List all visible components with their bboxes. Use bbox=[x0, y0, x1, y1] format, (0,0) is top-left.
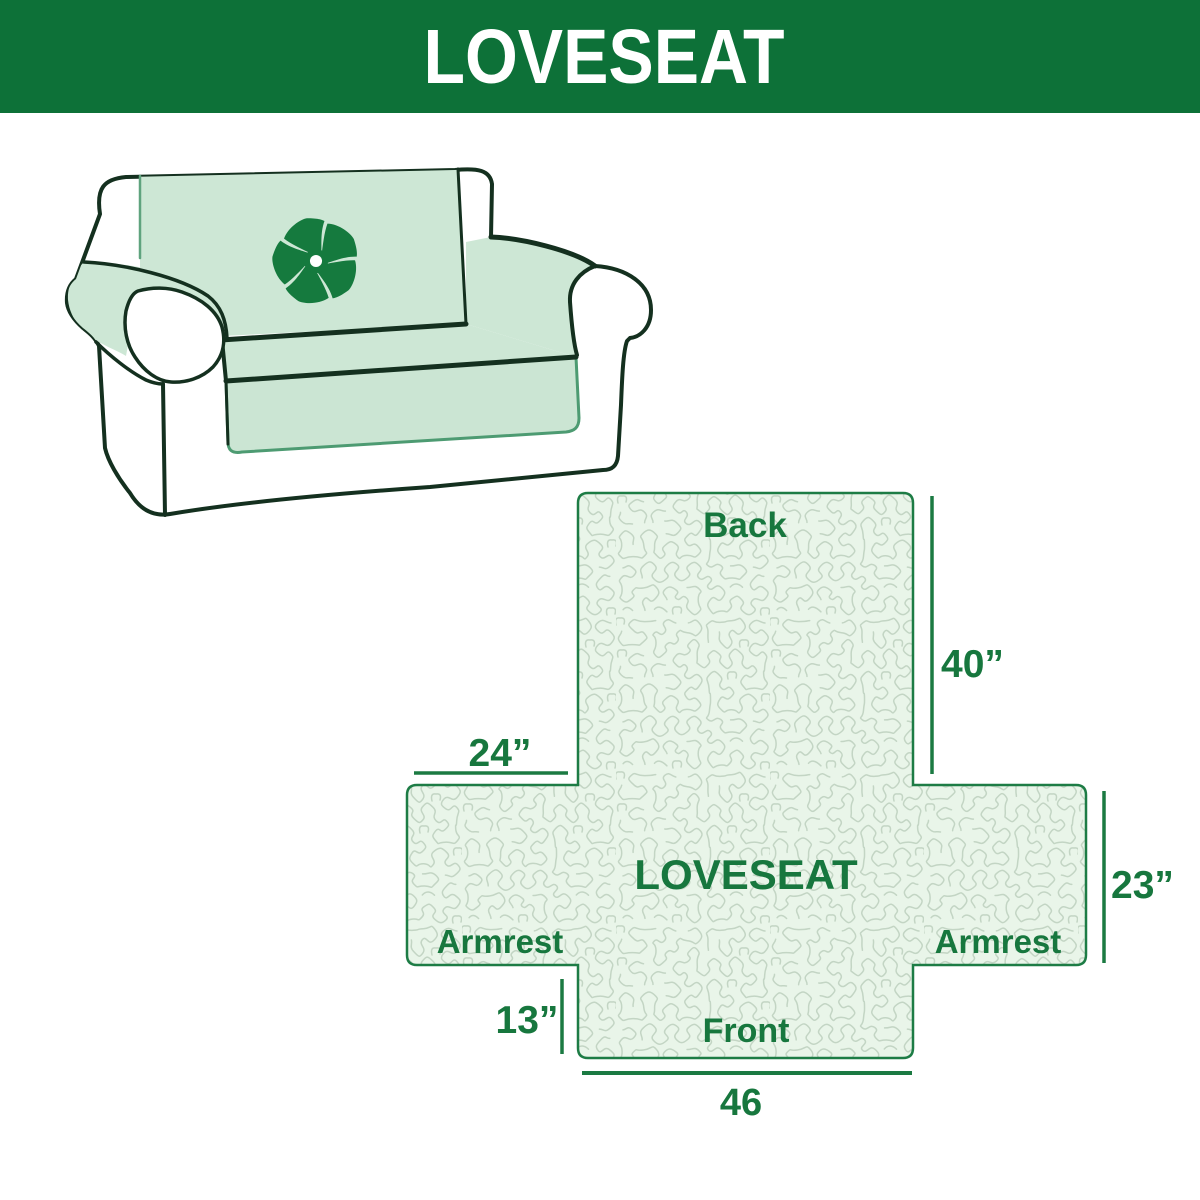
svg-text:13”: 13” bbox=[496, 999, 559, 1042]
svg-text:Front: Front bbox=[703, 1012, 790, 1050]
svg-text:46: 46 bbox=[720, 1082, 762, 1124]
svg-text:Armrest: Armrest bbox=[437, 923, 564, 960]
svg-text:24”: 24” bbox=[469, 732, 532, 775]
svg-text:40”: 40” bbox=[941, 643, 1004, 686]
svg-text:Armrest: Armrest bbox=[935, 923, 1062, 960]
svg-text:23”: 23” bbox=[1111, 864, 1174, 907]
svg-text:Back: Back bbox=[703, 506, 787, 545]
svg-text:LOVESEAT: LOVESEAT bbox=[634, 851, 858, 898]
